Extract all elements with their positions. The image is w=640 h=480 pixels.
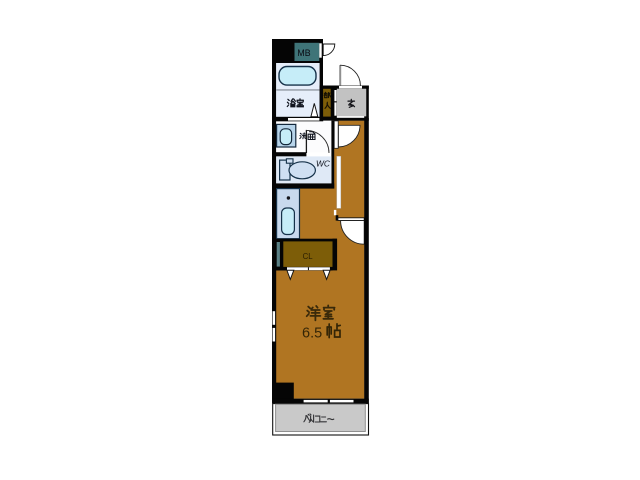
- svg-text:6.5: 6.5: [302, 325, 322, 341]
- svg-text:CL: CL: [303, 252, 314, 261]
- svg-text:MB: MB: [297, 48, 310, 58]
- svg-text:WC: WC: [316, 158, 331, 168]
